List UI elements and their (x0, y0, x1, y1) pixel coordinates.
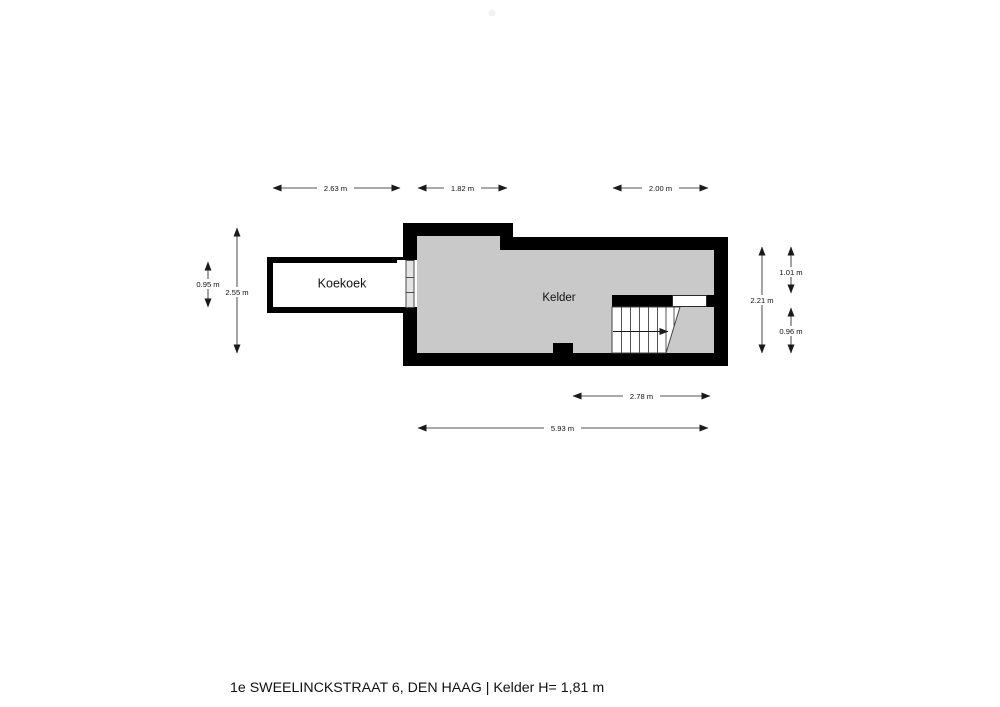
dim-label-bottom-1: 2.78 m (630, 392, 653, 401)
stair-wall-window (673, 296, 707, 307)
dim-label-right-1: 1.01 m (779, 268, 802, 277)
room-label-koekoek: Koekoek (318, 277, 367, 291)
dim-label-top-1: 2.63 m (324, 184, 347, 193)
floorplan-title: 1e SWEELINCKSTRAAT 6, DEN HAAG | Kelder … (230, 680, 604, 696)
stair-wall-stub (707, 295, 714, 307)
bottom-wall-pier (553, 343, 573, 354)
floorplan-drawing: 2.63 m 1.82 m 2.00 m 2.78 m 5.93 m 0.95 … (0, 0, 1000, 707)
floorplan-page: 2.63 m 1.82 m 2.00 m 2.78 m 5.93 m 0.95 … (0, 0, 1000, 707)
dim-label-top-2: 1.82 m (451, 184, 474, 193)
faint-watermark-mark (489, 10, 496, 17)
window-frame (406, 261, 414, 308)
room-label-kelder: Kelder (542, 292, 575, 304)
dim-label-right-3: 0.96 m (779, 327, 802, 336)
dim-label-top-3: 2.00 m (649, 184, 672, 193)
dim-label-left-1: 0.95 m (196, 280, 219, 289)
dim-label-right-2: 2.21 m (750, 296, 773, 305)
dim-label-bottom-2: 5.93 m (551, 424, 574, 433)
stair-wall (612, 295, 672, 307)
dim-label-left-2: 2.55 m (225, 288, 248, 297)
